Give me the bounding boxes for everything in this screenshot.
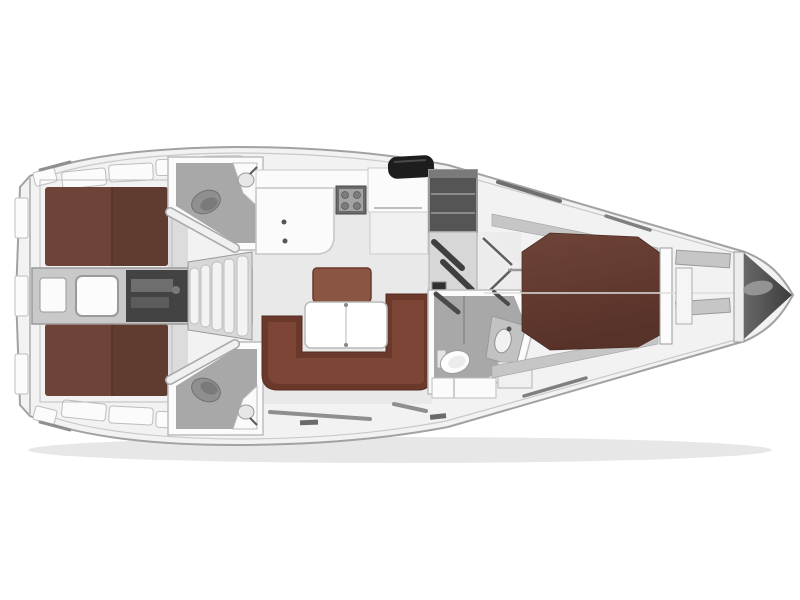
companionway-step (190, 268, 199, 324)
swim-step (15, 276, 28, 316)
aft-cabin-starboard (40, 318, 172, 402)
locker-panel (109, 406, 154, 425)
galley-lower-unit (370, 212, 428, 254)
sink-drain (283, 239, 288, 244)
companionway-hatch (387, 155, 434, 179)
table-hinge (344, 303, 348, 307)
bow-bulkhead (734, 252, 744, 342)
engine-block (131, 297, 169, 308)
companionway-step (201, 265, 210, 327)
stove-burner (342, 192, 349, 199)
engine-hatch (76, 276, 118, 316)
engine-block (131, 279, 173, 292)
stove-burner (342, 203, 349, 210)
tall-cabinet (429, 170, 477, 232)
engine-compartment (126, 270, 188, 322)
galley-main-counter (256, 188, 334, 254)
cabinet-top-lip (429, 170, 477, 178)
swim-step (15, 198, 28, 238)
companionway-step (224, 259, 234, 333)
yacht-floor-plan (0, 0, 800, 600)
stove-burner (354, 192, 361, 199)
transom-steps (15, 198, 28, 394)
sink-basin (238, 405, 254, 419)
sink-basin (238, 173, 254, 187)
berth-mattress-seam (112, 324, 168, 396)
yacht-floor-plan-canvas: Sailing yacht interior layout plan — top… (0, 0, 800, 600)
bow-locker-frame (676, 268, 692, 324)
stern-locker (40, 278, 66, 312)
galley-top-counter (256, 170, 372, 188)
engine-detail (172, 286, 180, 294)
forward-berth (522, 233, 660, 350)
saloon-bench (313, 268, 371, 302)
stove-burner (354, 203, 361, 210)
companionway-step (237, 256, 248, 336)
companionway-step (212, 262, 222, 330)
aft-cabin-port (40, 180, 172, 270)
locker-panel (109, 163, 154, 182)
faucet (507, 327, 512, 332)
berth-foot-bulkhead (660, 248, 672, 344)
head-locker (432, 378, 496, 398)
swim-step (15, 354, 28, 394)
forward-head (428, 290, 534, 398)
table-hinge (344, 343, 348, 347)
sink-drain (282, 220, 287, 225)
berth-mattress-seam (112, 187, 168, 266)
cleat (300, 420, 318, 426)
